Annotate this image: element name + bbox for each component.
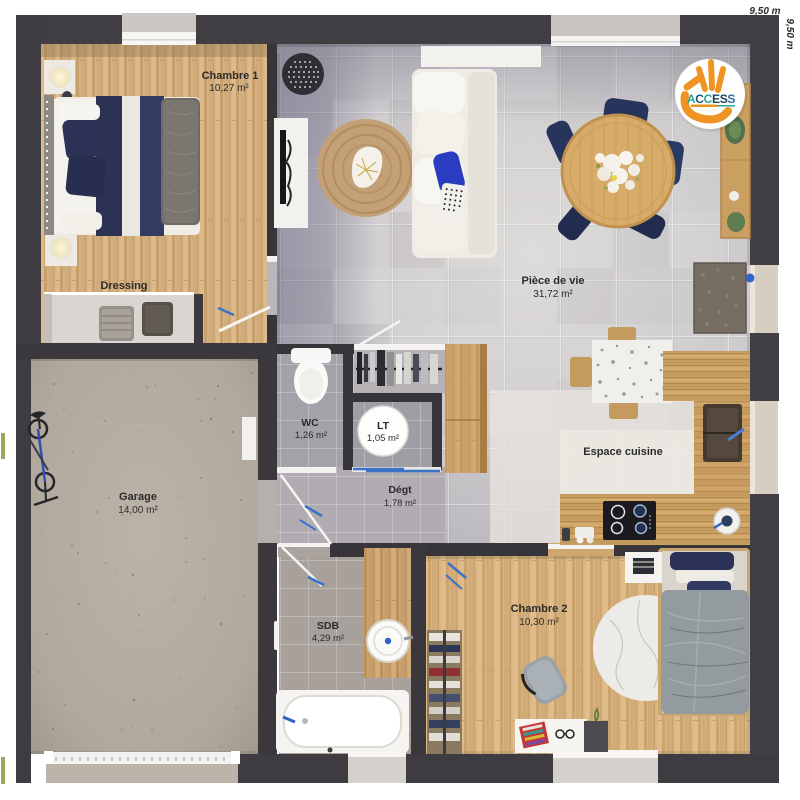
svg-text:WC: WC — [301, 417, 319, 429]
svg-text:Dressing: Dressing — [100, 280, 147, 292]
svg-text:10,30 m²: 10,30 m² — [519, 617, 559, 628]
svg-text:ACCESS: ACCESS — [687, 92, 736, 106]
svg-text:9,50 m: 9,50 m — [749, 6, 780, 17]
svg-text:1,78 m²: 1,78 m² — [384, 498, 416, 509]
svg-text:Dégt: Dégt — [388, 484, 412, 496]
svg-text:LT: LT — [377, 420, 390, 432]
svg-text:Garage: Garage — [119, 491, 157, 503]
svg-text:14,00 m²: 14,00 m² — [118, 505, 158, 516]
svg-text:1,05 m²: 1,05 m² — [367, 433, 399, 444]
svg-text:SDB: SDB — [317, 620, 340, 632]
svg-text:31,72 m²: 31,72 m² — [533, 289, 573, 300]
svg-text:1,26 m²: 1,26 m² — [295, 430, 327, 441]
svg-text:Chambre 1: Chambre 1 — [202, 70, 259, 82]
svg-text:9,50 m: 9,50 m — [784, 18, 795, 49]
svg-text:Espace cuisine: Espace cuisine — [583, 446, 663, 458]
svg-text:Pièce de vie: Pièce de vie — [522, 275, 585, 287]
svg-text:Chambre 2: Chambre 2 — [511, 603, 568, 615]
svg-text:10,27 m²: 10,27 m² — [209, 83, 249, 94]
svg-text:4,29 m²: 4,29 m² — [312, 633, 344, 644]
